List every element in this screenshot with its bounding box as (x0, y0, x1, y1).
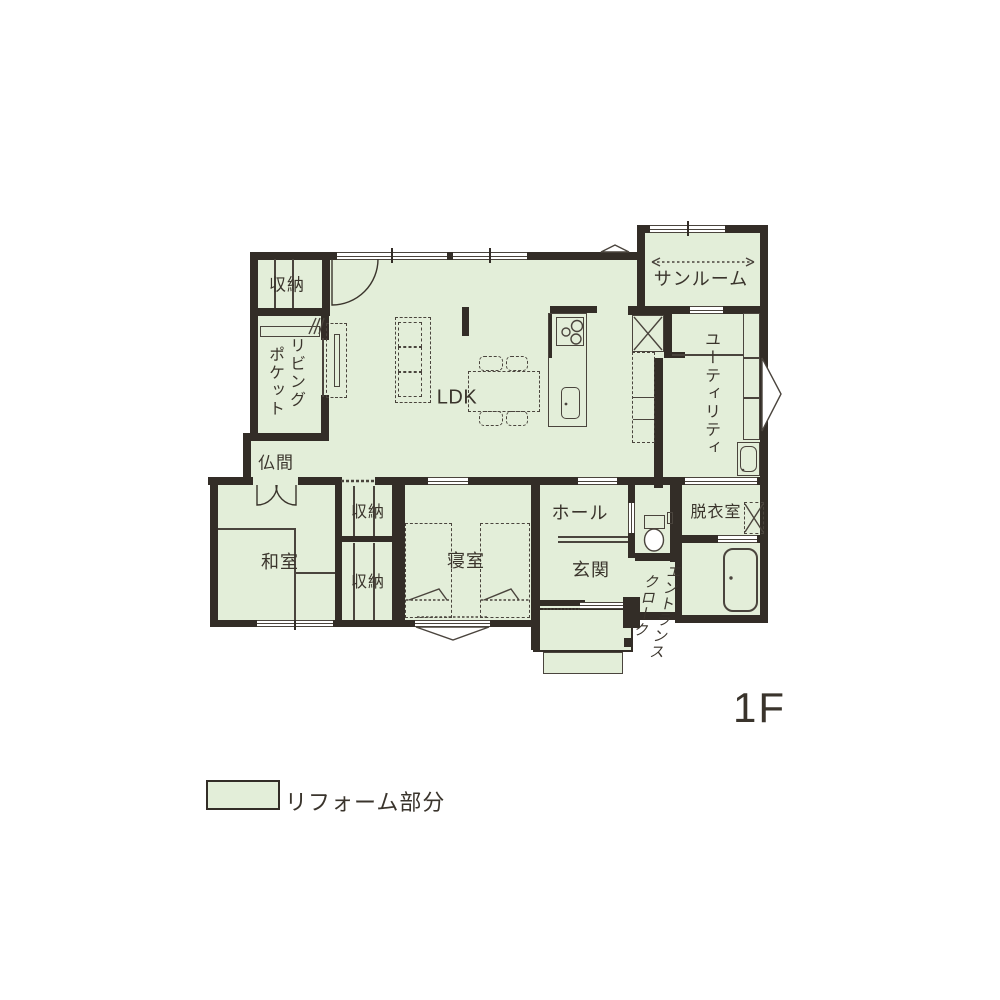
wall (468, 477, 578, 485)
toilet-door (628, 503, 635, 533)
room-label-ldk: LDK (437, 387, 477, 410)
wall (298, 477, 340, 485)
legend-swatch (206, 780, 280, 810)
bay-window-band (415, 620, 490, 627)
room-label-sunroom: サンルーム (654, 265, 748, 291)
sofa-cushion (398, 322, 422, 347)
step-line (558, 536, 628, 538)
entrance-door (580, 602, 623, 609)
porch-pillar (624, 638, 633, 647)
wall (392, 477, 405, 620)
kitchen-stove-icon (556, 317, 584, 346)
wall (637, 225, 645, 313)
room-label-utility: ユーティリティ (698, 331, 722, 457)
bathtub-icon (723, 548, 758, 612)
toilet-control (667, 512, 673, 524)
tatami-line (294, 528, 296, 620)
tatami-line (296, 572, 335, 574)
refrigerator-space-icon (632, 315, 664, 352)
bed-icon (480, 523, 530, 618)
vent-triangle-icon (601, 245, 629, 252)
dining-chair (479, 356, 503, 371)
half-wall-pillar (462, 307, 469, 336)
wall (550, 306, 597, 313)
dressing-room-door (685, 477, 757, 485)
wall (321, 395, 329, 441)
tatami-line (218, 528, 295, 530)
legend-label: リフォーム部分 (285, 785, 445, 817)
sofa-cushion (398, 347, 422, 372)
bay-window-icon (416, 627, 489, 640)
wall (250, 252, 258, 441)
wall (322, 252, 330, 314)
window-tick (687, 221, 689, 236)
utility-cabinet (743, 313, 760, 440)
wall (628, 306, 672, 315)
tv-icon (334, 334, 340, 387)
room-label-washitsu: 和室 (261, 548, 299, 574)
pantry-shelf-line (633, 419, 654, 420)
room-label-living-pocket-2: ポケット (262, 346, 286, 418)
wall (664, 315, 672, 352)
toilet-tank (644, 515, 665, 529)
wall (635, 553, 677, 561)
room-label-storage-nw: 収納 (269, 271, 305, 296)
wall (654, 358, 663, 488)
living-pocket-desk (260, 326, 320, 337)
wall (250, 308, 330, 316)
wall (531, 477, 540, 650)
washing-machine-icon (744, 502, 764, 534)
window-tick (489, 248, 491, 263)
bed-icon (405, 523, 452, 618)
room-label-butsuma: 仏間 (258, 449, 294, 474)
hall-sliding-door (578, 477, 617, 485)
dining-table-icon (468, 371, 540, 412)
wall (760, 225, 768, 623)
room-label-living-pocket-1: リビング (283, 337, 307, 409)
dining-chair (479, 411, 503, 426)
entrance-step (543, 652, 623, 674)
wall (243, 433, 329, 441)
room-label-storage-upper: 収納 (351, 498, 385, 522)
wall (335, 536, 405, 542)
room-label-dressing-room: 脱衣室 (690, 498, 741, 522)
bedroom-sliding-door (428, 477, 468, 485)
sunroom-utility-door (690, 306, 723, 314)
washbasin-bowl (740, 446, 757, 472)
floor-label: 1F (733, 684, 786, 732)
step-line (558, 541, 628, 543)
entrance-porch (533, 608, 633, 652)
wall (210, 477, 218, 627)
floor-plan: 収納 リビング ポケット 仏間 LDK サンルーム ユーティリティ 和室 収納 … (0, 0, 1000, 1000)
window-tick (391, 248, 393, 263)
room-label-genkan: 玄関 (572, 556, 610, 582)
dining-chair (506, 356, 528, 371)
sofa-cushion (398, 372, 422, 397)
living-pocket-opening-line (322, 338, 324, 397)
pantry-shelf-line (633, 397, 654, 398)
wall (335, 477, 342, 620)
room-label-hall: ホール (552, 499, 609, 525)
room-label-storage-lower: 収納 (351, 568, 385, 592)
dining-chair (506, 411, 528, 426)
bath-door (718, 535, 757, 543)
room-label-bedroom: 寝室 (447, 547, 485, 573)
wall (675, 615, 768, 623)
kitchen-sink-icon (561, 387, 580, 419)
wall (540, 600, 585, 606)
